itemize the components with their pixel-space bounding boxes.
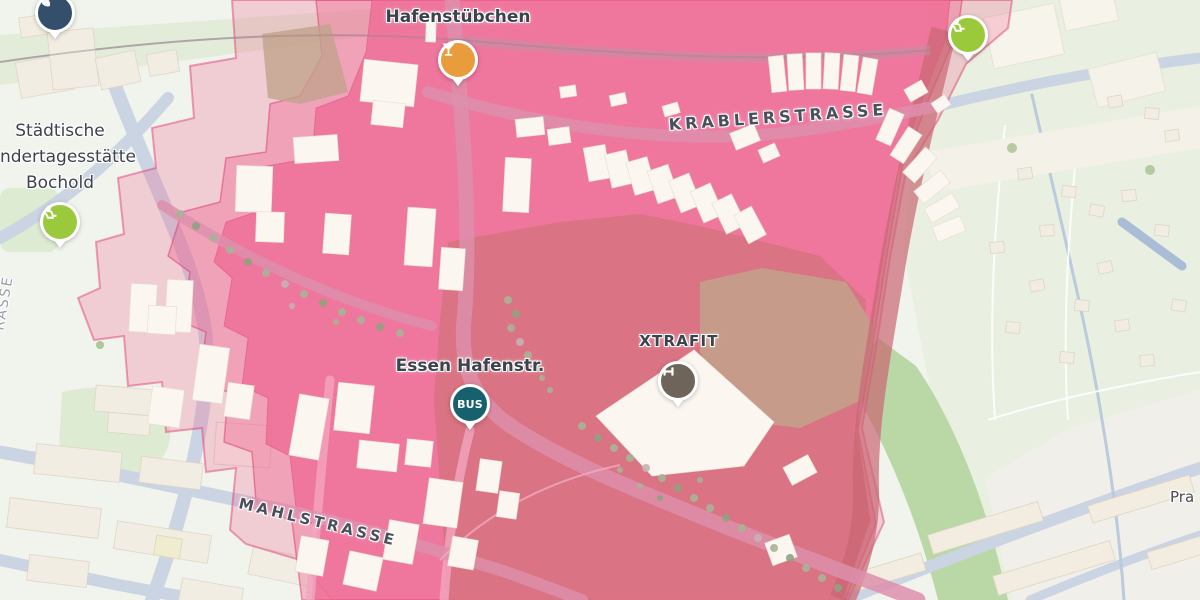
label-xtrafit: XTRAFIT: [639, 332, 718, 350]
label-hafenstuebchen: Hafenstübchen: [385, 7, 530, 27]
playground-pin-circle: [40, 202, 80, 242]
map-canvas[interactable]: Hafenstübchen Städtische Kindertagesstät…: [0, 0, 1200, 600]
poi-marker-playground-right[interactable]: [948, 15, 988, 61]
kita-line-3: Bochold: [0, 170, 136, 196]
bus-stop-marker[interactable]: BUS: [450, 384, 490, 430]
pin-pointer: [961, 52, 975, 61]
bus-pin-circle: BUS: [450, 384, 490, 424]
bus-badge: BUS: [457, 398, 483, 411]
pin-pointer: [53, 239, 67, 248]
map-tiles: [0, 0, 1200, 600]
poi-marker-gym[interactable]: [658, 361, 698, 407]
kita-line-2: Kindertagesstätte: [0, 144, 136, 170]
kita-line-1: Städtische: [0, 118, 136, 144]
pin-pointer: [671, 398, 685, 407]
label-essen-hafenstr: Essen Hafenstr.: [396, 356, 545, 376]
pin-pointer: [48, 30, 62, 39]
label-kindertagesstaette: Städtische Kindertagesstätte Bochold: [0, 118, 136, 196]
poi-marker-playground-left[interactable]: [40, 202, 80, 248]
navy-pin-circle: [35, 0, 75, 33]
poi-marker-navy[interactable]: [35, 0, 75, 39]
playground-pin-circle: [948, 15, 988, 55]
label-street-pra-partial: Pra: [1170, 488, 1194, 506]
pin-pointer: [463, 421, 477, 430]
gym-pin-circle: [658, 361, 698, 401]
pin-pointer: [451, 77, 465, 86]
bar-pin-circle: [438, 40, 478, 80]
poi-marker-cocktail-bar[interactable]: [438, 40, 478, 86]
